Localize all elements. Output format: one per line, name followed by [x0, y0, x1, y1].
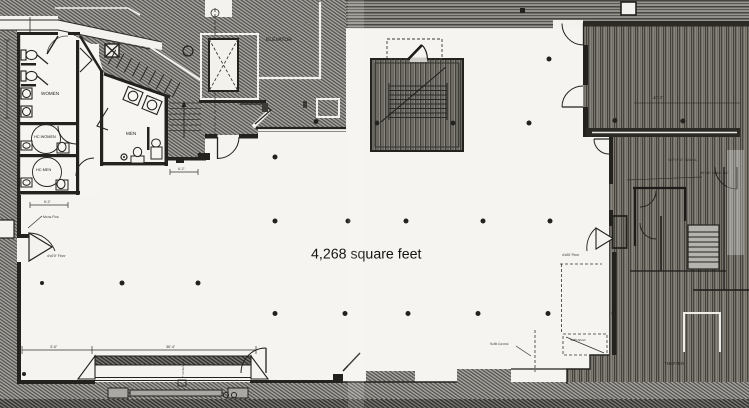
svg-text:4,268 square feet: 4,268 square feet [311, 247, 421, 263]
svg-text:4'x6'0" Floor: 4'x6'0" Floor [47, 254, 66, 258]
svg-text:THEATER: THEATER [664, 361, 684, 366]
svg-text:36'-4": 36'-4" [166, 345, 176, 349]
svg-text:MEN: MEN [126, 131, 136, 136]
svg-text:4'x60' Floor: 4'x60' Floor [562, 253, 580, 257]
svg-text:3'-0": 3'-0" [50, 345, 58, 349]
svg-text:5'-0"x7'-0" JAN. CL.: 5'-0"x7'-0" JAN. CL. [668, 158, 698, 162]
svg-text:HC-WOMEN: HC-WOMEN [34, 135, 56, 139]
svg-text:Soffit Control: Soffit Control [490, 342, 509, 346]
svg-text:2" conservation: 2" conservation [181, 358, 185, 378]
svg-text:ELEVATOR: ELEVATOR [266, 37, 292, 43]
svg-text:Mens Fins: Mens Fins [43, 215, 59, 219]
svg-text:40'-2": 40'-2" [653, 95, 664, 100]
svg-text:WOMEN: WOMEN [41, 91, 59, 96]
svg-text:6'-2": 6'-2" [178, 167, 186, 171]
svg-text:8'-2": 8'-2" [44, 200, 52, 204]
svg-text:HC-MEN: HC-MEN [36, 168, 51, 172]
svg-text:Soffit Above: Soffit Above [570, 338, 586, 342]
